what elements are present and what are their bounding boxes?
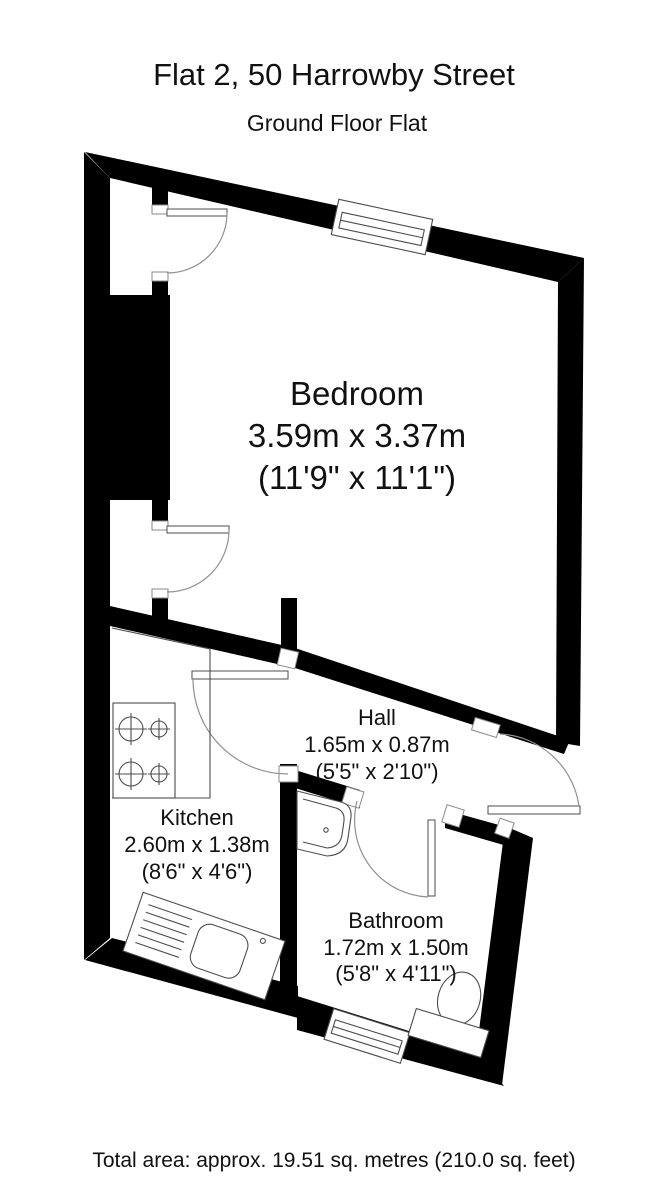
room-size-imperial: (5'5" x 2'10") (315, 759, 438, 784)
jamb (152, 205, 168, 214)
door-leaf (167, 526, 229, 533)
bathroom-window-icon (324, 1009, 410, 1064)
kitchen-label: Kitchen 2.60m x 1.38m (8'6" x 4'6") (124, 805, 270, 884)
room-name: Bathroom (348, 908, 443, 933)
total-area-text: Total area: approx. 19.51 sq. metres (21… (92, 1149, 575, 1172)
door1-stub-bottom (152, 280, 168, 297)
page-subtitle: Ground Floor Flat (247, 110, 428, 136)
room-name: Bedroom (290, 375, 424, 412)
door-swing-arc (355, 801, 428, 897)
door-swing-arc (167, 213, 227, 273)
door-leaf (167, 209, 227, 216)
room-size-metric: 1.65m x 0.87m (304, 732, 450, 757)
kitchen-bathroom-divider (280, 764, 297, 1012)
room-name: Kitchen (160, 805, 233, 830)
hall-label: Hall 1.65m x 0.87m (5'5" x 2'10") (304, 705, 450, 784)
room-size-metric: 3.59m x 3.37m (248, 417, 466, 454)
floor-plan-svg: Flat 2, 50 Harrowby Street Ground Floor … (0, 0, 669, 1200)
chimney-breast (108, 295, 170, 500)
right-wall-upper (556, 258, 584, 746)
door-leaf (488, 806, 580, 814)
floorplan-page: Flat 2, 50 Harrowby Street Ground Floor … (0, 0, 669, 1200)
room-size-imperial: (11'9" x 11'1") (258, 459, 456, 496)
kitchen-counter (112, 628, 210, 798)
room-size-imperial: (5'8" x 4'11") (335, 961, 456, 986)
left-wall (84, 152, 110, 960)
bedroom-door-lower-left (167, 526, 229, 592)
kitchen-door (192, 671, 288, 774)
door-swing-arc (193, 679, 288, 774)
door-swing-arc (167, 530, 229, 592)
bedroom-wall-nib (281, 598, 297, 652)
hob-icon (113, 703, 175, 798)
bedroom-window-icon (331, 199, 432, 254)
room-size-imperial: (8'6" x 4'6") (142, 859, 253, 884)
room-size-metric: 1.72m x 1.50m (323, 935, 469, 960)
room-name: Hall (358, 705, 396, 730)
jamb (152, 521, 168, 530)
bathroom-label: Bathroom 1.72m x 1.50m (5'8" x 4'11") (323, 908, 469, 986)
door-leaf (192, 671, 288, 679)
bedroom-door-upper-left (167, 209, 227, 273)
bedroom-bottom-wall-left (110, 606, 295, 668)
bathroom-door (355, 801, 435, 897)
door-leaf (428, 820, 435, 896)
door2-stub-top (152, 498, 168, 523)
bedroom-label: Bedroom 3.59m x 3.37m (11'9" x 11'1") (248, 375, 466, 496)
jamb (152, 589, 168, 598)
page-title: Flat 2, 50 Harrowby Street (153, 57, 515, 92)
jamb (277, 648, 298, 669)
jamb (152, 272, 168, 281)
room-size-metric: 2.60m x 1.38m (124, 832, 270, 857)
